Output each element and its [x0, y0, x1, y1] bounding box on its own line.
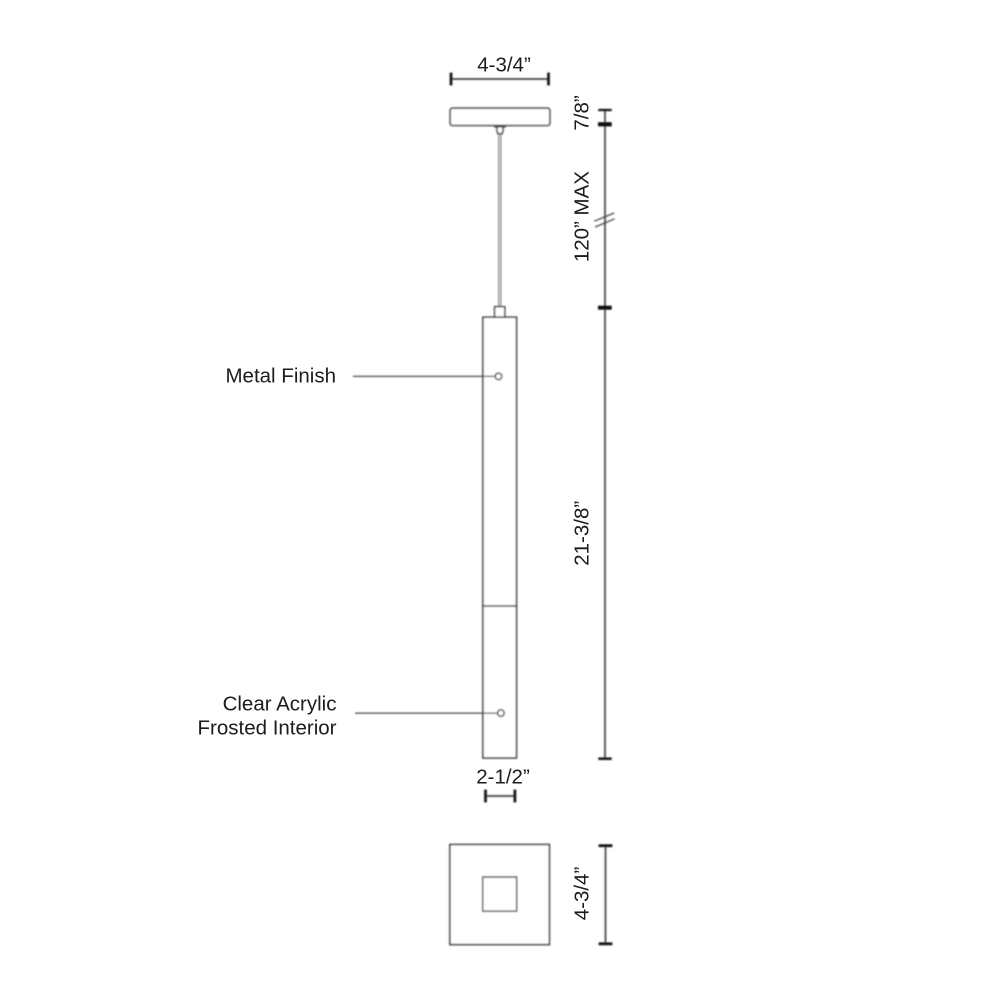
svg-text:7/8”: 7/8” [571, 95, 594, 130]
svg-text:120” MAX: 120” MAX [571, 171, 594, 262]
svg-text:Clear Acrylic: Clear Acrylic [223, 692, 337, 715]
svg-text:21-3/8”: 21-3/8” [571, 501, 594, 566]
svg-text:4-3/4”: 4-3/4” [477, 54, 531, 77]
svg-text:4-3/4”: 4-3/4” [571, 867, 594, 921]
svg-text:Metal Finish: Metal Finish [225, 365, 336, 388]
svg-text:Frosted Interior: Frosted Interior [198, 716, 337, 739]
svg-text:2-1/2”: 2-1/2” [476, 766, 530, 789]
